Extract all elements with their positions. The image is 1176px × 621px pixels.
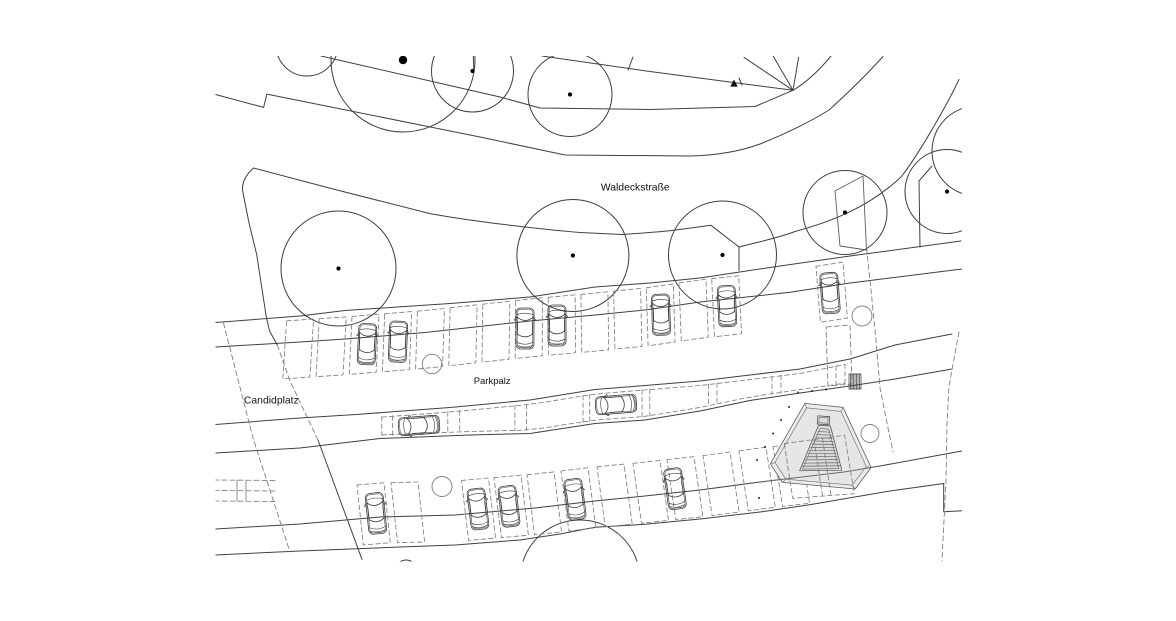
svg-text:Candidplatz: Candidplatz	[244, 396, 299, 407]
svg-text:Waldeckstraße: Waldeckstraße	[601, 183, 670, 194]
svg-text:Parkpalz: Parkpalz	[474, 376, 511, 387]
